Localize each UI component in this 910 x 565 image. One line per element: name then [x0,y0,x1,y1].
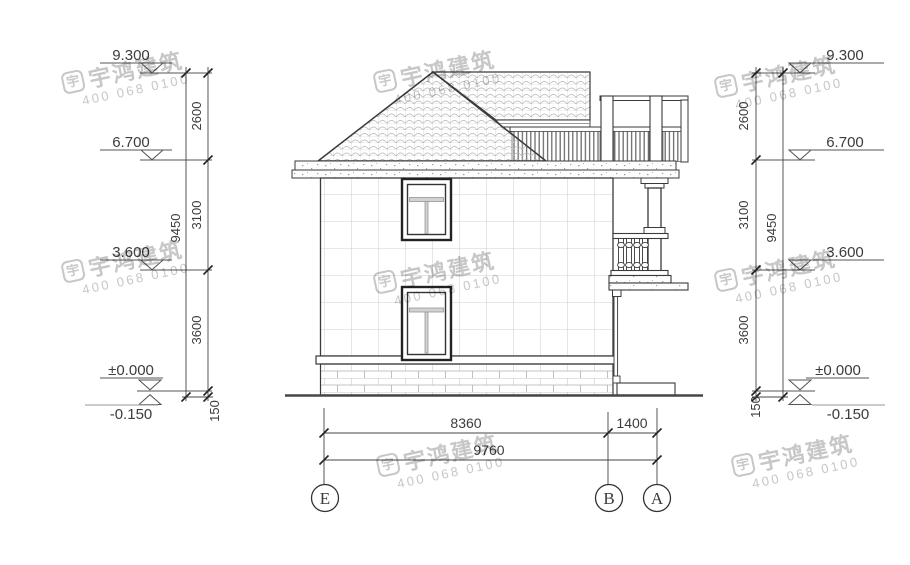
railing-post [601,96,613,162]
dim-total-width: 9760 [473,442,504,458]
corner-post [614,297,618,377]
porch-corner [613,290,676,395]
level-label: 9.300 [826,47,864,64]
grid-bubbles: E B A [312,485,671,512]
dim-first-storey: 3600 [189,316,204,345]
dim-second-storey: 3100 [736,201,751,230]
house-elevation [285,72,703,396]
wall-face [321,178,614,356]
level-marker-minus150: -0.150 [789,395,885,423]
balcony-slab [609,276,671,284]
balusters [618,239,649,271]
railing-bars-middle [614,132,649,162]
dim-plinth: 150 [748,396,763,418]
grid-axis-label-b: B [603,489,614,508]
window-mullion [425,312,428,353]
window-transom [410,308,444,312]
grid-axis-label-e: E [320,489,330,508]
ground-step [617,383,675,395]
elevation-drawing: 9.300 6.700 3.600 ±0.000 [0,0,910,565]
level-marker-3600: 3.600 [752,244,884,270]
level-label: -0.150 [110,406,153,423]
column-ring [644,228,665,234]
level-label: 6.700 [826,134,864,151]
level-marker-9300: 9.300 [752,47,884,73]
grid-axis-label-a: A [651,489,664,508]
level-marker-6700: 6.700 [752,134,884,160]
eave-cornice-band [292,161,679,178]
window-first-floor [402,287,451,360]
window-transom [410,198,444,202]
level-marker-zero: ±0.000 [100,362,212,391]
level-label: 9.300 [112,47,150,64]
string-course [316,356,617,364]
dim-total-height: 9450 [764,214,779,243]
level-marker-minus150: -0.150 [85,395,161,423]
dim-first-storey: 3600 [736,316,751,345]
level-marker-6700: 6.700 [100,134,212,160]
balustrade-bottom-rail [611,271,668,276]
dim-span-b-a: 1400 [616,415,647,431]
railing-post [650,96,662,162]
dim-plinth: 150 [207,400,222,422]
left-dimension-chains: 2600 3100 3600 150 9450 [168,67,222,422]
level-label: 3.600 [826,244,864,261]
dim-second-storey: 3100 [189,201,204,230]
bottom-dimensions: 8360 1400 9760 [320,408,662,484]
dim-roof-height: 2600 [736,102,751,131]
level-label: ±0.000 [108,362,154,379]
dim-roof-height: 2600 [189,102,204,131]
elevation-drawing-canvas: 9.300 6.700 3.600 ±0.000 [0,0,910,565]
brick-plinth [321,364,614,395]
column-capital [641,178,668,184]
balcony [609,178,688,290]
railing-bars-right [663,132,681,162]
dim-span-e-b: 8360 [450,415,481,431]
window-mullion [425,202,428,234]
window-second-floor [402,179,451,240]
level-label: 3.600 [112,244,150,261]
dim-total-height: 9450 [168,214,183,243]
railing-post [681,100,688,162]
level-label: 6.700 [112,134,150,151]
right-dimension-chains: 2600 3100 3600 150 9450 [736,67,788,418]
level-marker-9300: 9.300 [100,47,212,73]
level-marker-3600: 3.600 [100,244,212,270]
balustrade-handrail [613,234,668,239]
level-marker-zero: ±0.000 [752,362,869,391]
level-label: -0.150 [827,406,870,423]
level-label: ±0.000 [815,362,861,379]
